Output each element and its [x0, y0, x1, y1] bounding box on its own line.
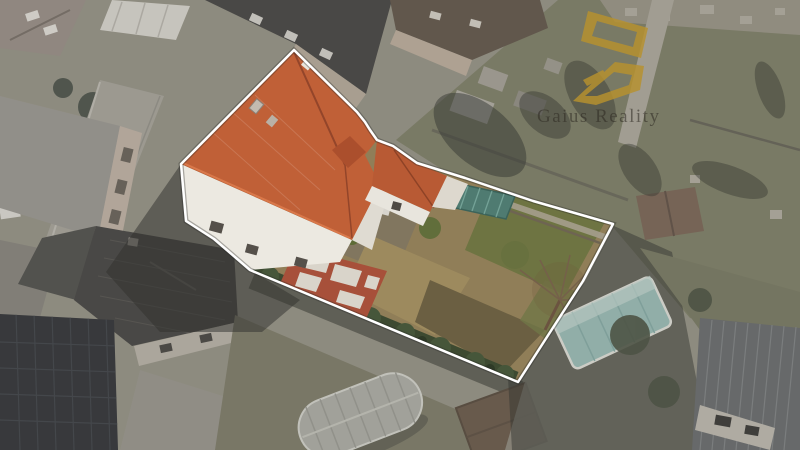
aerial-photo: Gaius Reality [0, 0, 800, 450]
garden-tree [501, 241, 529, 269]
brand-text: Gaius Reality [537, 106, 660, 127]
